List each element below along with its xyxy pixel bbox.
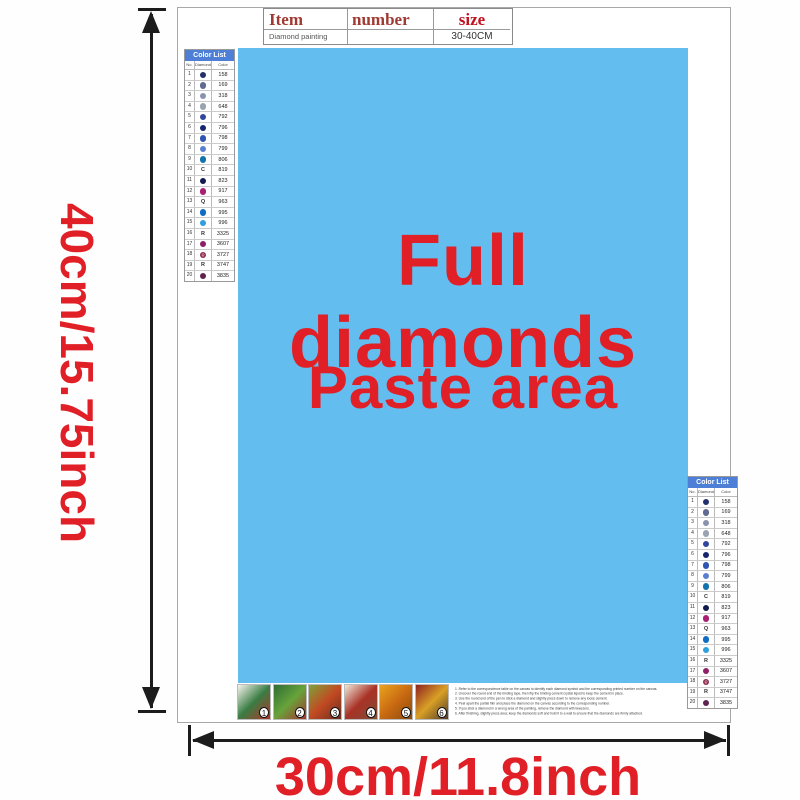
color-list-row: 6796 xyxy=(688,550,737,561)
dmc-color-code: 318 xyxy=(715,520,737,526)
diamond-letter-symbol: C xyxy=(704,594,708,600)
dmc-color-code: 819 xyxy=(212,167,234,173)
dmc-color-code: 796 xyxy=(212,125,234,131)
dmc-color-code: 318 xyxy=(212,93,234,99)
canvas-sheet: Item number size Diamond painting 30-40C… xyxy=(177,7,731,723)
color-list-row: 1158 xyxy=(185,70,234,81)
info-header-size: size xyxy=(434,9,510,30)
diamond-symbol: Q xyxy=(195,250,212,260)
info-value-item: Diamond painting xyxy=(264,30,348,44)
diamond-symbol xyxy=(195,70,212,80)
color-number: 7 xyxy=(185,134,195,144)
color-list-row: 8799 xyxy=(688,571,737,582)
diamond-symbol xyxy=(698,508,715,518)
diamond-letter-symbol: Q xyxy=(704,626,708,632)
diamond-symbol xyxy=(698,582,715,592)
color-number: 14 xyxy=(185,208,195,218)
color-number: 18 xyxy=(185,250,195,260)
diamond-symbol xyxy=(195,176,212,186)
dmc-color-code: 963 xyxy=(715,626,737,632)
color-list-row: 4648 xyxy=(185,102,234,113)
dmc-color-code: 996 xyxy=(715,647,737,653)
diamond-symbol xyxy=(195,123,212,133)
example-thumbnail: 2 xyxy=(273,684,307,720)
dmc-color-code: 823 xyxy=(715,605,737,611)
diamond-dot-icon xyxy=(200,273,206,279)
color-list-row: 12917 xyxy=(688,614,737,625)
color-number: 12 xyxy=(688,614,698,624)
dmc-color-code: 995 xyxy=(212,210,234,216)
diamond-letter-symbol: Q xyxy=(201,199,205,205)
color-number: 9 xyxy=(185,155,195,165)
diamond-dot-icon xyxy=(703,552,709,558)
diamond-dot-icon xyxy=(703,636,709,642)
color-list-column-header: Color xyxy=(212,61,234,69)
item-info-table: Item number size Diamond painting 30-40C… xyxy=(263,8,513,45)
color-list-row: 173607 xyxy=(185,240,234,251)
dmc-color-code: 796 xyxy=(715,552,737,558)
diamond-symbol: C xyxy=(195,165,212,175)
color-list-row: 11823 xyxy=(688,603,737,614)
color-number: 6 xyxy=(688,550,698,560)
paste-area-subtitle: Paste area xyxy=(238,353,688,422)
diamond-symbol: R xyxy=(698,688,715,698)
diamond-symbol xyxy=(195,240,212,250)
dmc-color-code: 648 xyxy=(715,531,737,537)
arrow-right-icon xyxy=(704,731,726,749)
dmc-color-code: 963 xyxy=(212,199,234,205)
color-number: 4 xyxy=(688,529,698,539)
color-list-row: 18Q3727 xyxy=(688,677,737,688)
diamond-letter-symbol: R xyxy=(201,262,205,268)
color-number: 1 xyxy=(688,497,698,507)
color-list-title: Color List xyxy=(688,477,737,488)
arrow-end-bar xyxy=(138,710,166,713)
dmc-color-code: 792 xyxy=(715,541,737,547)
diamond-symbol xyxy=(195,208,212,218)
diamond-dot-icon xyxy=(200,135,206,141)
diamond-symbol: R xyxy=(195,261,212,271)
dmc-color-code: 3835 xyxy=(715,700,737,706)
diamond-symbol xyxy=(195,271,212,281)
color-number: 3 xyxy=(185,91,195,101)
thumbnail-number-badge: 4 xyxy=(366,707,376,718)
instruction-line: 6. After finishing, slightly press area;… xyxy=(455,712,690,717)
example-thumbnail: 6 xyxy=(415,684,449,720)
dmc-color-code: 3325 xyxy=(212,231,234,237)
dmc-color-code: 917 xyxy=(212,188,234,194)
color-list-row: 203835 xyxy=(688,698,737,708)
dmc-color-code: 819 xyxy=(715,594,737,600)
thumbnail-number-badge: 5 xyxy=(401,707,411,718)
dmc-color-code: 169 xyxy=(212,82,234,88)
info-header-item: Item xyxy=(264,9,348,30)
diamond-symbol xyxy=(195,155,212,165)
color-list-row: 2169 xyxy=(185,81,234,92)
diamond-symbol xyxy=(195,81,212,91)
diamond-dot-icon xyxy=(703,605,709,611)
diamond-symbol xyxy=(698,497,715,507)
diamond-symbol xyxy=(698,603,715,613)
diamond-dot-icon xyxy=(703,520,709,526)
diamond-symbol: R xyxy=(698,656,715,666)
color-list-column-headers: No.DiamondColor xyxy=(185,61,234,70)
color-list-row: 13Q963 xyxy=(185,197,234,208)
diamond-symbol xyxy=(698,698,715,708)
color-list-row: 16R3325 xyxy=(688,656,737,667)
thumbnail-number-badge: 6 xyxy=(437,707,447,718)
diamond-symbol xyxy=(195,218,212,228)
info-table-value-row: Diamond painting 30-40CM xyxy=(264,30,512,44)
dmc-color-code: 3727 xyxy=(715,679,737,685)
color-number: 18 xyxy=(688,677,698,687)
color-number: 17 xyxy=(688,667,698,677)
color-number: 5 xyxy=(688,539,698,549)
diamond-symbol xyxy=(698,571,715,581)
color-list-row: 7798 xyxy=(688,561,737,572)
color-list-row: 9806 xyxy=(688,582,737,593)
diamond-symbol xyxy=(195,102,212,112)
dmc-color-code: 3607 xyxy=(212,241,234,247)
dmc-color-code: 169 xyxy=(715,509,737,515)
color-list-row: 16R3325 xyxy=(185,229,234,240)
arrow-shaft xyxy=(150,14,153,708)
dmc-color-code: 806 xyxy=(212,157,234,163)
color-list-row: 6796 xyxy=(185,123,234,134)
diamond-dot-icon xyxy=(703,647,709,653)
width-dimension-label: 30cm/11.8inch xyxy=(275,746,641,800)
color-number: 16 xyxy=(688,656,698,666)
color-list-row: 12917 xyxy=(185,187,234,198)
dmc-color-code: 806 xyxy=(715,584,737,590)
example-thumbnail: 4 xyxy=(344,684,378,720)
diamond-dot-icon xyxy=(703,583,709,589)
color-list-row: 203835 xyxy=(185,271,234,281)
color-list-row: 14995 xyxy=(185,208,234,219)
color-list-row: 15996 xyxy=(185,218,234,229)
dmc-color-code: 3747 xyxy=(212,262,234,268)
dmc-color-code: 823 xyxy=(212,178,234,184)
instructions-text: 1. Refer to the correspondence table on … xyxy=(455,687,690,717)
dmc-color-code: 158 xyxy=(715,499,737,505)
diamond-letter-symbol: R xyxy=(201,231,205,237)
color-number: 11 xyxy=(688,603,698,613)
diamond-symbol xyxy=(195,144,212,154)
color-list-row: 19R3747 xyxy=(185,261,234,272)
arrow-down-icon xyxy=(142,687,160,709)
example-thumbnail: 5 xyxy=(379,684,413,720)
diamond-symbol: Q xyxy=(698,624,715,634)
diamond-dot-icon xyxy=(703,562,709,568)
diamond-dot-icon xyxy=(703,700,709,706)
color-list-row: 14995 xyxy=(688,635,737,646)
color-list-right: Color ListNo.DiamondColor115821693318464… xyxy=(687,476,738,709)
color-number: 8 xyxy=(688,571,698,581)
color-list-row: 1158 xyxy=(688,497,737,508)
color-list-row: 10C819 xyxy=(185,165,234,176)
arrow-shaft xyxy=(193,739,726,742)
color-list-row: 3318 xyxy=(185,91,234,102)
dmc-color-code: 799 xyxy=(212,146,234,152)
diamond-symbol xyxy=(698,529,715,539)
diamond-dot-icon xyxy=(200,178,206,184)
diamond-symbol xyxy=(698,667,715,677)
color-number: 16 xyxy=(185,229,195,239)
color-list-column-headers: No.DiamondColor xyxy=(688,488,737,497)
color-list-title: Color List xyxy=(185,50,234,61)
color-list-row: 13Q963 xyxy=(688,624,737,635)
diamond-dot-icon xyxy=(703,509,709,515)
color-list-column-header: Diamond xyxy=(195,61,212,69)
dmc-color-code: 3607 xyxy=(715,668,737,674)
dmc-color-code: 798 xyxy=(715,562,737,568)
color-list-row: 4648 xyxy=(688,529,737,540)
diamond-symbol xyxy=(698,614,715,624)
color-number: 20 xyxy=(185,271,195,281)
diamond-dot-icon xyxy=(200,146,206,152)
color-number: 5 xyxy=(185,112,195,122)
diamond-dot-icon xyxy=(200,188,206,194)
dmc-color-code: 798 xyxy=(212,135,234,141)
color-number: 17 xyxy=(185,240,195,250)
example-thumbnail: 3 xyxy=(308,684,342,720)
color-list-row: 10C819 xyxy=(688,592,737,603)
example-thumbnails: 123456 xyxy=(237,684,449,720)
diamond-dot-icon xyxy=(200,103,206,109)
product-image: Item number size Diamond painting 30-40C… xyxy=(0,0,800,800)
diamond-dot-icon xyxy=(703,499,709,505)
color-number: 10 xyxy=(688,592,698,602)
color-list-row: 3318 xyxy=(688,518,737,529)
color-list-row: 173607 xyxy=(688,667,737,678)
diamond-dot-icon: Q xyxy=(703,679,709,685)
dmc-color-code: 648 xyxy=(212,104,234,110)
diamond-symbol xyxy=(195,187,212,197)
diamond-dot-icon xyxy=(703,668,709,674)
dmc-color-code: 917 xyxy=(715,615,737,621)
thumbnail-number-badge: 3 xyxy=(330,707,340,718)
color-number: 2 xyxy=(185,81,195,91)
color-number: 12 xyxy=(185,187,195,197)
diamond-symbol xyxy=(698,518,715,528)
diamond-dot-icon xyxy=(200,156,206,162)
diamond-dot-icon xyxy=(200,125,206,131)
diamond-symbol xyxy=(195,134,212,144)
color-number: 3 xyxy=(688,518,698,528)
color-number: 15 xyxy=(185,218,195,228)
color-list-row: 5792 xyxy=(185,112,234,123)
color-list-row: 11823 xyxy=(185,176,234,187)
color-list-row: 7798 xyxy=(185,134,234,145)
dmc-color-code: 3835 xyxy=(212,273,234,279)
dmc-color-code: 158 xyxy=(212,72,234,78)
diamond-dot-icon: Q xyxy=(200,252,206,258)
color-list-row: 18Q3727 xyxy=(185,250,234,261)
color-list-row: 15996 xyxy=(688,645,737,656)
diamond-symbol: Q xyxy=(698,677,715,687)
example-thumbnail: 1 xyxy=(237,684,271,720)
diamond-dot-icon xyxy=(200,82,206,88)
dmc-color-code: 3325 xyxy=(715,658,737,664)
dmc-color-code: 3727 xyxy=(212,252,234,258)
diamond-dot-icon xyxy=(703,615,709,621)
diamond-letter-symbol: R xyxy=(704,658,708,664)
diamond-dot-icon xyxy=(200,209,206,215)
color-number: 8 xyxy=(185,144,195,154)
diamond-dot-icon xyxy=(703,541,709,547)
dmc-color-code: 996 xyxy=(212,220,234,226)
diamond-symbol: R xyxy=(195,229,212,239)
color-list-row: 5792 xyxy=(688,539,737,550)
color-number: 10 xyxy=(185,165,195,175)
color-number: 11 xyxy=(185,176,195,186)
height-dimension-label: 40cm/15.75inch xyxy=(50,203,104,543)
diamond-symbol: Q xyxy=(195,197,212,207)
dmc-color-code: 792 xyxy=(212,114,234,120)
paste-area: Full diamonds Paste area xyxy=(238,48,688,683)
color-number: 9 xyxy=(688,582,698,592)
diamond-symbol xyxy=(195,91,212,101)
color-number: 13 xyxy=(688,624,698,634)
dmc-color-code: 3747 xyxy=(715,689,737,695)
diamond-letter-symbol: R xyxy=(704,689,708,695)
color-number: 2 xyxy=(688,508,698,518)
diamond-symbol xyxy=(698,635,715,645)
arrow-end-bar xyxy=(188,725,191,756)
diamond-dot-icon xyxy=(703,530,709,536)
diamond-dot-icon xyxy=(200,114,206,120)
color-list-column-header: Diamond xyxy=(698,488,715,496)
color-number: 4 xyxy=(185,102,195,112)
diamond-symbol xyxy=(698,539,715,549)
color-list-column-header: No. xyxy=(185,61,195,69)
color-number: 6 xyxy=(185,123,195,133)
diamond-dot-icon xyxy=(200,93,206,99)
color-list-row: 2169 xyxy=(688,508,737,519)
diamond-dot-icon xyxy=(200,241,206,247)
color-list-row: 19R3747 xyxy=(688,688,737,699)
color-number: 15 xyxy=(688,645,698,655)
color-number: 13 xyxy=(185,197,195,207)
info-value-number xyxy=(348,30,434,44)
thumbnail-number-badge: 1 xyxy=(259,707,269,718)
info-value-size: 30-40CM xyxy=(434,30,510,44)
color-list-left: Color ListNo.DiamondColor115821693318464… xyxy=(184,49,235,282)
arrow-end-bar xyxy=(727,725,730,756)
diamond-letter-symbol: C xyxy=(201,167,205,173)
diamond-symbol xyxy=(195,112,212,122)
color-list-column-header: No. xyxy=(688,488,698,496)
diamond-dot-icon xyxy=(200,220,206,226)
color-number: 14 xyxy=(688,635,698,645)
color-number: 7 xyxy=(688,561,698,571)
color-number: 19 xyxy=(185,261,195,271)
diamond-symbol: C xyxy=(698,592,715,602)
diamond-symbol xyxy=(698,550,715,560)
dmc-color-code: 799 xyxy=(715,573,737,579)
info-table-header-row: Item number size xyxy=(264,9,512,30)
color-number: 1 xyxy=(185,70,195,80)
info-header-number: number xyxy=(348,9,434,30)
dmc-color-code: 995 xyxy=(715,637,737,643)
diamond-symbol xyxy=(698,645,715,655)
instructions-block: 1. Refer to the correspondence table on … xyxy=(455,687,691,723)
color-list-column-header: Color xyxy=(715,488,737,496)
thumbnail-number-badge: 2 xyxy=(295,707,305,718)
color-list-row: 8799 xyxy=(185,144,234,155)
color-list-row: 9806 xyxy=(185,155,234,166)
diamond-symbol xyxy=(698,561,715,571)
diamond-dot-icon xyxy=(200,72,206,78)
diamond-dot-icon xyxy=(703,573,709,579)
